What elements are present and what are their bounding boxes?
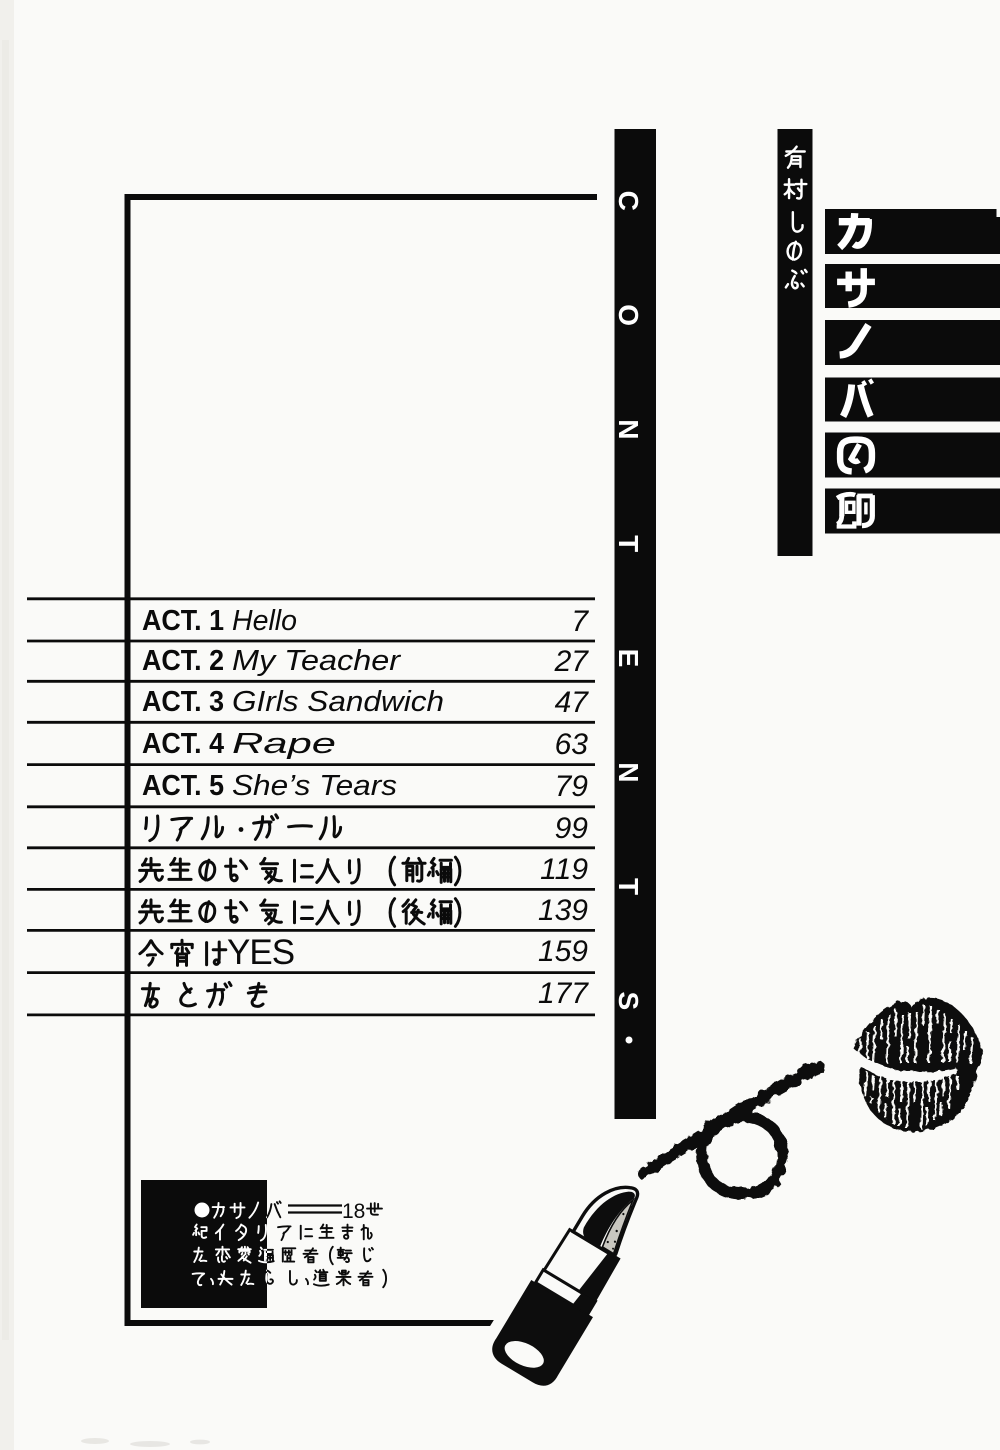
- svg-text:ACT. 1: ACT. 1: [142, 605, 224, 637]
- svg-text:79: 79: [555, 770, 589, 803]
- svg-text:S: S: [613, 992, 644, 1011]
- svg-text:C: C: [613, 191, 644, 211]
- svg-text:139: 139: [538, 894, 588, 927]
- svg-text:119: 119: [540, 853, 588, 886]
- svg-text:177: 177: [538, 977, 589, 1010]
- svg-text:27: 27: [554, 645, 590, 678]
- svg-text:T: T: [613, 535, 644, 552]
- svg-text:ACT. 3: ACT. 3: [142, 686, 224, 718]
- svg-text:Hello: Hello: [232, 605, 297, 637]
- svg-text:47: 47: [555, 686, 590, 719]
- svg-text:ACT. 5: ACT. 5: [142, 770, 224, 802]
- svg-text:ACT. 4: ACT. 4: [142, 728, 224, 760]
- svg-text:99: 99: [555, 812, 589, 845]
- svg-text:T: T: [613, 878, 644, 895]
- svg-text:Rape: Rape: [232, 728, 336, 760]
- svg-text:YES: YES: [227, 933, 294, 972]
- svg-text:ACT. 2: ACT. 2: [142, 645, 224, 677]
- svg-text:7: 7: [571, 605, 589, 638]
- svg-text:She’s Tears: She’s Tears: [232, 770, 397, 802]
- svg-text:159: 159: [538, 935, 588, 968]
- svg-text:E: E: [613, 649, 644, 668]
- svg-text:63: 63: [555, 728, 589, 761]
- svg-text:GIrls Sandwich: GIrls Sandwich: [232, 686, 444, 718]
- svg-text:O: O: [613, 304, 644, 326]
- svg-text:N: N: [613, 762, 644, 782]
- svg-text:N: N: [613, 419, 644, 439]
- svg-text:My Teacher: My Teacher: [232, 645, 402, 677]
